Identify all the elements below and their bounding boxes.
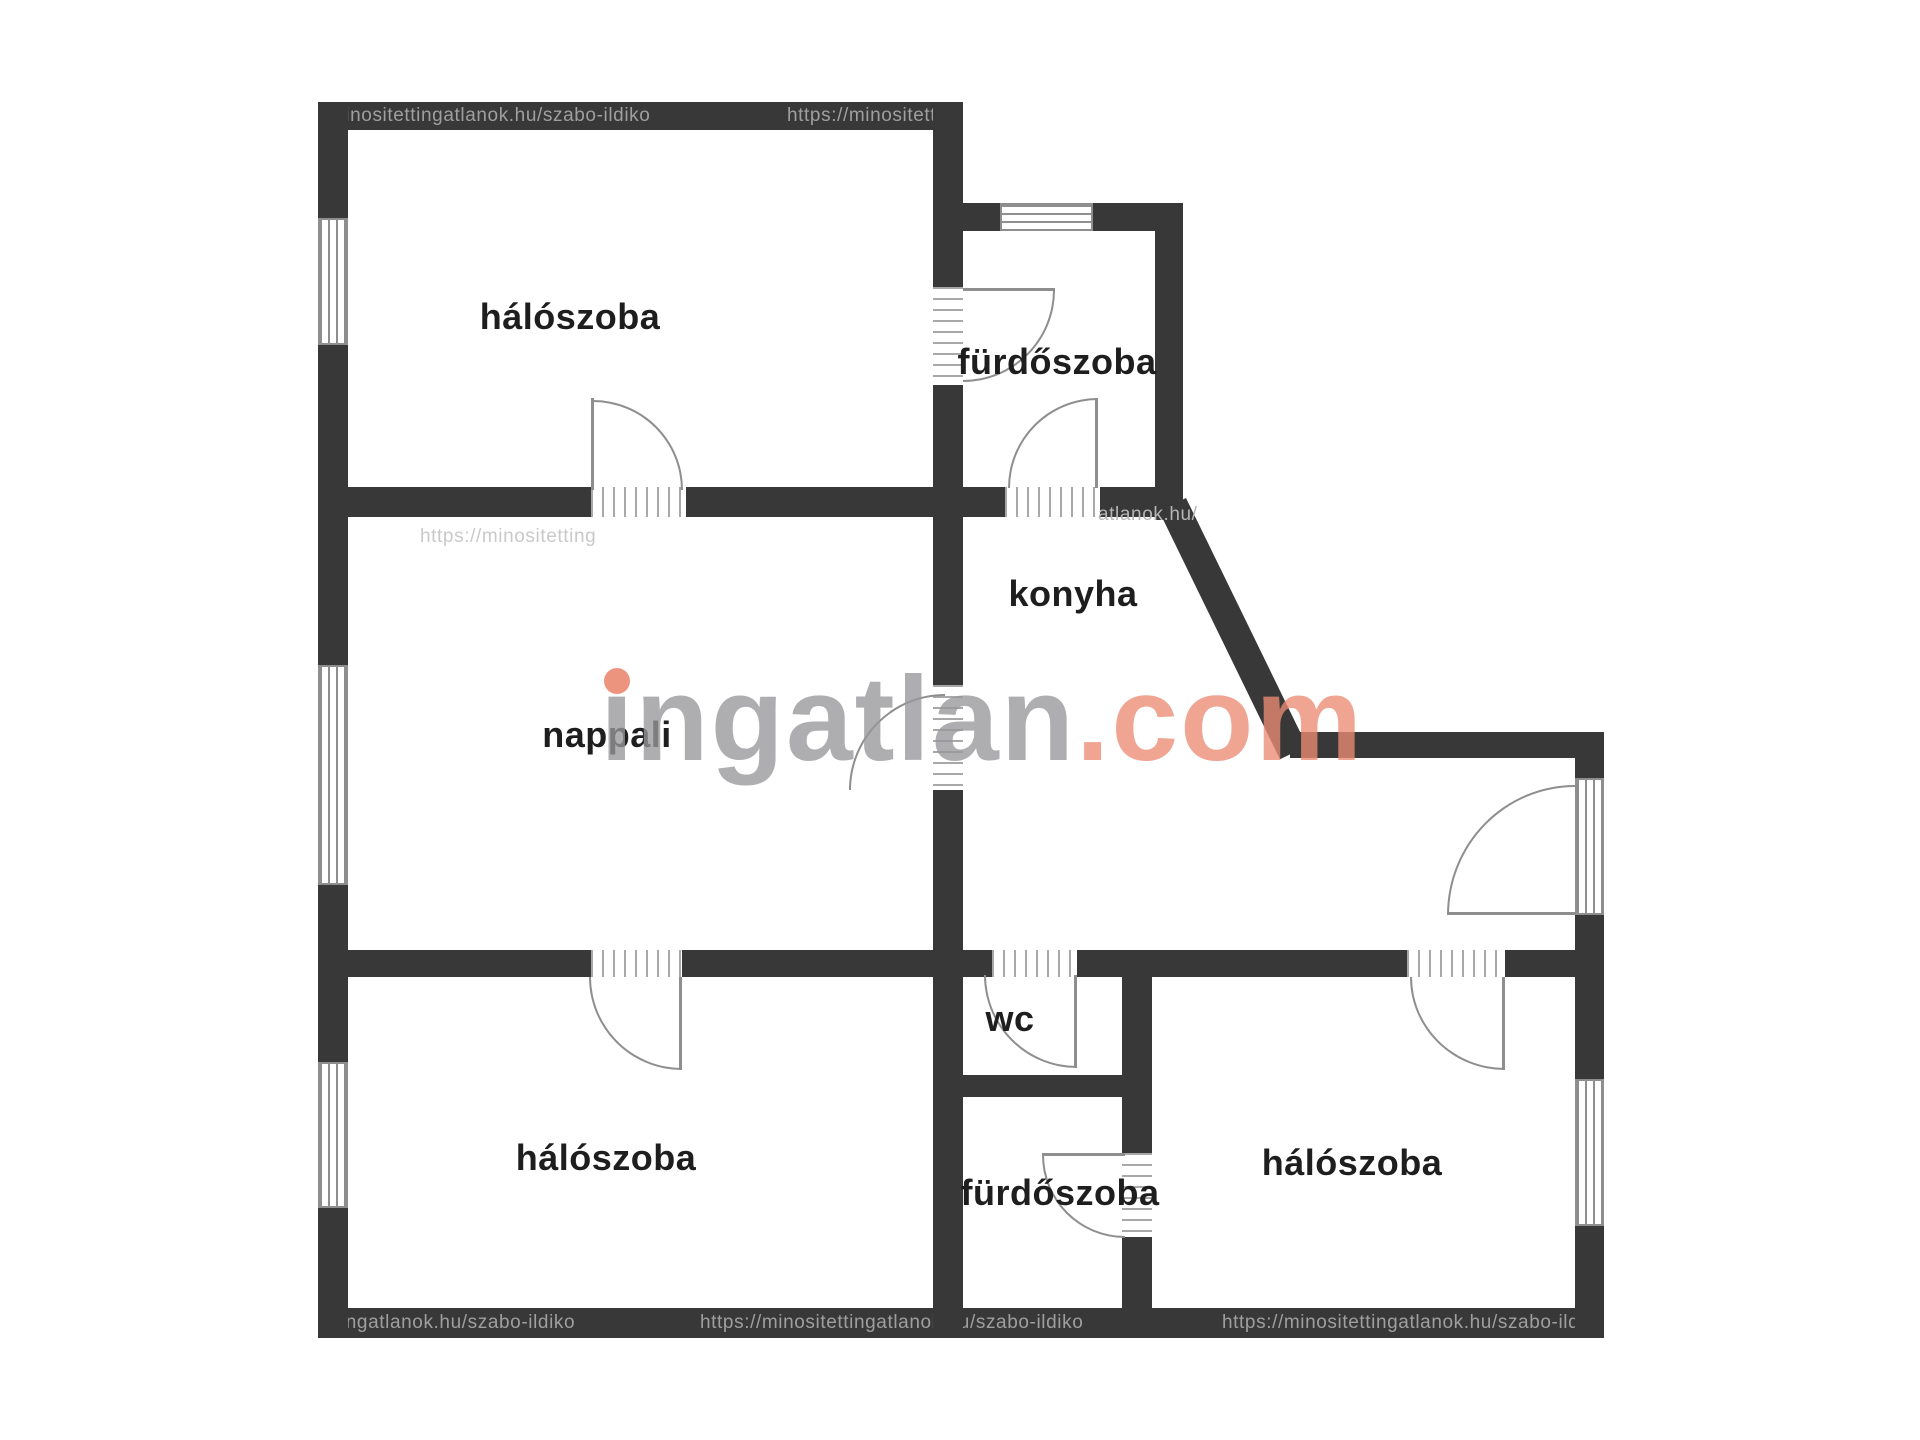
watermark-url-bottom-2: https://minositettingatlanok.hu/szabo-il… [700,1312,1083,1334]
watermark-url-bottom-3: https://minositettingatlanok.hu/szabo-il… [1222,1312,1604,1334]
window-symbol-bathroom1 [1000,203,1093,231]
room-label-bathroom-bottom: fürdőszoba [961,1172,1160,1214]
room-label-bedroom-top-left: hálószoba [480,296,661,338]
watermark-brand-i-dot-icon [604,668,630,694]
window-symbol-balcony-door [1575,778,1604,915]
room-label-bathroom-top: fürdőszoba [958,341,1157,383]
door-leaf-wc [1074,975,1077,1068]
watermark-brand-tld: .com [1076,652,1364,786]
room-label-bedroom-bottom-right: hálószoba [1262,1142,1443,1184]
door-leaf-bathroom2 [1042,1153,1125,1156]
door-leaf-bedroom1 [591,398,594,490]
room-label-bedroom-bottom-left: hálószoba [516,1137,697,1179]
floor-plan-canvas: /minositettingatlanok.hu/szabo-ildiko ht… [0,0,1920,1440]
door-arc-bathroom1-kitchen [1008,398,1098,488]
door-threshold-bedroom3 [1407,950,1505,977]
door-leaf-bedroom3 [1502,977,1505,1070]
watermark-url-mid-left: https://minositetting [420,526,596,548]
room-label-wc: wc [985,998,1034,1040]
door-arc-bedroom3 [1410,977,1505,1070]
watermark-url-bottom-1: ettingatlanok.hu/szabo-ildiko [318,1312,575,1334]
door-leaf-bathroom1-kitchen [1095,398,1098,488]
watermark-brand-name: ıngatlan [600,652,1076,786]
room-label-kitchen: konyha [1008,573,1137,615]
watermark-url-mid-right: atlanok.hu/ [1098,504,1198,526]
wall-bathroom-right [1155,203,1183,520]
door-arc-bedroom1 [593,400,683,490]
door-threshold-bedroom2 [591,950,682,977]
door-leaf-balcony [1447,912,1575,915]
window-symbol-bedroom3 [1575,1079,1604,1226]
door-arc-balcony [1447,785,1575,915]
window-symbol-living [318,665,348,885]
window-symbol-bedroom2 [318,1062,348,1208]
door-leaf-bathroom1-left [963,288,1055,291]
window-symbol-bedroom1 [318,218,348,345]
door-arc-bedroom2 [589,977,682,1070]
watermark-url-top-left: /minositettingatlanok.hu/szabo-ildiko [323,105,650,127]
wall-wc-right [1122,950,1152,1338]
door-threshold-bedroom1 [591,487,686,517]
wall-top: /minositettingatlanok.hu/szabo-ildiko ht… [318,102,963,130]
door-leaf-bedroom2 [679,977,682,1070]
door-threshold-wc [992,950,1077,977]
watermark-brand: ıngatlan.com [600,659,1364,779]
door-threshold-bathroom1-kitchen [1005,487,1100,517]
